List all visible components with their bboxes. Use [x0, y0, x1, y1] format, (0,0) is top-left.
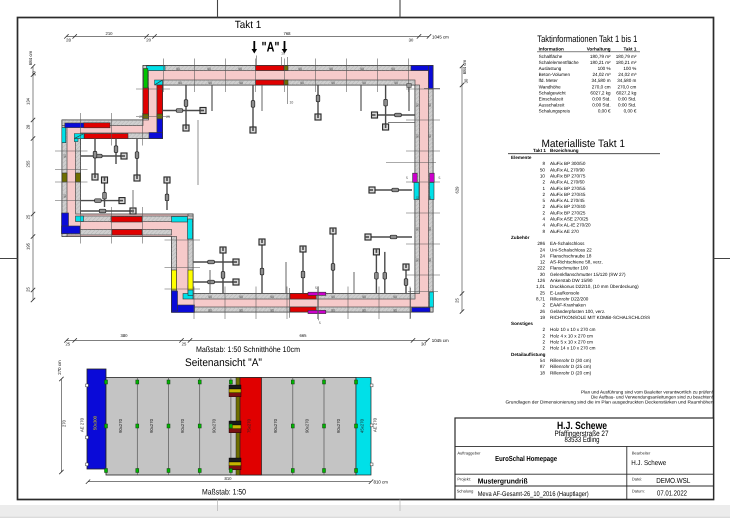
svg-text:210: 210	[106, 31, 114, 36]
svg-text:83533 Edling: 83533 Edling	[565, 435, 600, 444]
svg-text:AluFix AL 270/45: AluFix AL 270/45	[550, 198, 585, 203]
svg-text:684 cm: 684 cm	[462, 59, 467, 74]
svg-text:12: 12	[540, 260, 546, 265]
svg-text:100 %: 100 %	[623, 66, 636, 71]
svg-text:AE 270: AE 270	[373, 417, 378, 432]
svg-text:Wandhöhe: Wandhöhe	[539, 84, 561, 89]
svg-text:26: 26	[540, 309, 546, 314]
svg-text:6027,2 kg: 6027,2 kg	[616, 90, 637, 95]
svg-text:180,21 m²: 180,21 m²	[590, 60, 611, 65]
svg-text:Vorhaltung: Vorhaltung	[587, 46, 611, 51]
svg-text:90: 90	[394, 81, 398, 85]
svg-text:90: 90	[329, 67, 333, 71]
svg-text:Beton-Volumen: Beton-Volumen	[539, 72, 571, 77]
svg-text:0:00 Std.: 0:00 Std.	[592, 97, 610, 102]
svg-text:90: 90	[393, 308, 397, 312]
svg-text:34,580 m: 34,580 m	[617, 78, 636, 83]
svg-text:AluFix AL 270/60: AluFix AL 270/60	[550, 180, 585, 185]
svg-text:6027,2 kg: 6027,2 kg	[590, 90, 611, 95]
svg-text:Holz 14 x 10 x 270 cm: Holz 14 x 10 x 270 cm	[550, 346, 596, 351]
svg-text:Takt 1: Takt 1	[235, 19, 262, 31]
svg-text:180,79 m²: 180,79 m²	[590, 54, 611, 59]
svg-text:24: 24	[540, 247, 546, 252]
svg-text:629: 629	[455, 186, 460, 194]
svg-text:90x270: 90x270	[180, 418, 185, 433]
svg-text:75x270: 75x270	[247, 418, 252, 433]
svg-text:90: 90	[331, 81, 335, 85]
svg-text:25: 25	[455, 298, 460, 303]
svg-text:90: 90	[362, 308, 366, 312]
svg-text:2: 2	[542, 204, 545, 209]
svg-text:2: 2	[542, 210, 545, 215]
svg-text:90: 90	[331, 295, 335, 299]
svg-text:Maßstab: 1:50: Maßstab: 1:50	[202, 487, 246, 496]
svg-text:AluFix BP 300/50: AluFix BP 300/50	[550, 161, 586, 166]
svg-text:Gelenkflanschmutter 15/120 (SW: Gelenkflanschmutter 15/120 (SW 27)	[550, 272, 626, 277]
svg-text:90: 90	[63, 154, 67, 158]
svg-text:5: 5	[319, 321, 321, 325]
svg-text:Ausschalzeit: Ausschalzeit	[539, 103, 566, 108]
svg-text:Holz 10 x 10 x 270 cm: Holz 10 x 10 x 270 cm	[550, 327, 596, 332]
svg-text:Auslastung: Auslastung	[539, 66, 562, 71]
svg-text:90: 90	[238, 67, 242, 71]
svg-text:90: 90	[63, 194, 67, 198]
svg-text:07.01.2022: 07.01.2022	[657, 489, 687, 498]
svg-text:AS-Richtschiene 58, verz.: AS-Richtschiene 58, verz.	[550, 260, 603, 265]
svg-text:5: 5	[315, 286, 317, 290]
svg-text:90: 90	[178, 81, 182, 85]
svg-text:AluFix BP 270/75: AluFix BP 270/75	[550, 173, 586, 178]
svg-text:54: 54	[540, 358, 546, 363]
svg-text:90: 90	[362, 81, 366, 85]
svg-text:25: 25	[26, 287, 31, 292]
svg-text:2: 2	[542, 327, 545, 332]
svg-text:30: 30	[32, 71, 37, 76]
svg-text:Seitenansicht "A": Seitenansicht "A"	[185, 357, 262, 369]
svg-text:Holz 5 x 10 x 270 cm: Holz 5 x 10 x 270 cm	[550, 340, 593, 345]
svg-text:4: 4	[542, 217, 545, 222]
svg-text:30: 30	[421, 342, 426, 347]
svg-text:Einschalzeit: Einschalzeit	[539, 97, 564, 102]
svg-text:2: 2	[542, 180, 545, 185]
svg-text:Projekt:: Projekt:	[457, 477, 471, 482]
svg-text:270,0 cm: 270,0 cm	[592, 84, 611, 89]
svg-text:25: 25	[26, 214, 31, 219]
svg-text:"A": "A"	[262, 39, 280, 55]
svg-text:Geländerpfosten 100, verz.: Geländerpfosten 100, verz.	[550, 309, 605, 314]
svg-text:AluFix AE 270: AluFix AE 270	[550, 229, 579, 234]
svg-text:90x270: 90x270	[336, 418, 341, 433]
svg-text:Information: Information	[539, 46, 564, 51]
svg-text:0,00 €: 0,00 €	[624, 109, 637, 114]
svg-text:90x270: 90x270	[273, 418, 278, 433]
svg-text:90: 90	[208, 81, 212, 85]
svg-text:AluFix ASE 270/25: AluFix ASE 270/25	[550, 217, 589, 222]
svg-text:90: 90	[270, 308, 274, 312]
svg-text:24,02 m³: 24,02 m³	[592, 72, 611, 77]
svg-text:Schalfläche: Schalfläche	[539, 54, 563, 59]
svg-text:Zubehör: Zubehör	[511, 235, 530, 240]
svg-text:DEMO.WSL: DEMO.WSL	[656, 476, 690, 485]
svg-text:EuroSchal Homepage: EuroSchal Homepage	[495, 454, 557, 463]
svg-text:90: 90	[239, 81, 243, 85]
svg-text:90: 90	[298, 67, 302, 71]
svg-text:0,00 €: 0,00 €	[598, 109, 611, 114]
svg-text:AluFix BP 270/55: AluFix BP 270/55	[550, 186, 586, 191]
svg-text:2: 2	[542, 340, 545, 345]
svg-text:Meva AF-Gesamt-26_10_2016 (Hau: Meva AF-Gesamt-26_10_2016 (Hauptlager)	[478, 491, 589, 498]
svg-text:25: 25	[182, 342, 187, 347]
svg-text:24,02 m³: 24,02 m³	[618, 72, 637, 77]
svg-text:Schalelementfläche: Schalelementfläche	[539, 60, 580, 65]
svg-text:50: 50	[540, 167, 546, 172]
svg-text:100 %: 100 %	[598, 66, 611, 71]
svg-text:810: 810	[225, 476, 233, 481]
svg-text:768: 768	[284, 31, 292, 36]
svg-text:Mustergrundriß: Mustergrundriß	[478, 476, 528, 485]
svg-text:10: 10	[290, 101, 294, 105]
svg-text:1,01: 1,01	[536, 284, 545, 289]
svg-text:28: 28	[66, 38, 71, 43]
svg-text:45x270: 45x270	[360, 418, 365, 433]
svg-text:AluFix BP 270/45: AluFix BP 270/45	[550, 192, 586, 197]
svg-text:90: 90	[415, 227, 419, 231]
svg-text:1: 1	[542, 186, 545, 191]
svg-text:1045 cm: 1045 cm	[432, 35, 449, 40]
svg-text:AluFix AL-IE 270/20: AluFix AL-IE 270/20	[550, 223, 591, 228]
svg-text:270 cm: 270 cm	[57, 360, 62, 375]
svg-text:90: 90	[208, 295, 212, 299]
svg-text:Datum:: Datum:	[632, 488, 645, 493]
svg-text:90: 90	[428, 258, 432, 262]
svg-text:180,21 m²: 180,21 m²	[616, 60, 637, 65]
svg-text:Schalung: Schalung	[457, 488, 474, 493]
svg-text:222: 222	[537, 266, 545, 271]
svg-text:90: 90	[428, 103, 432, 107]
svg-text:10: 10	[540, 173, 546, 178]
svg-text:18: 18	[540, 370, 546, 375]
svg-text:RICHTKONSOLE MIT KOMBI-SCHALSC: RICHTKONSOLE MIT KOMBI-SCHALSCHLOSS	[550, 315, 650, 320]
svg-text:EAAF-Kranhaken: EAAF-Kranhaken	[550, 303, 586, 308]
svg-text:90: 90	[331, 308, 335, 312]
svg-text:0:00 Std.: 0:00 Std.	[618, 103, 636, 108]
svg-text:28: 28	[26, 124, 31, 129]
svg-text:87: 87	[540, 364, 546, 369]
svg-text:90x270: 90x270	[211, 418, 216, 433]
svg-text:Elemente: Elemente	[511, 155, 532, 160]
svg-text:665: 665	[300, 333, 308, 338]
svg-text:90x270: 90x270	[118, 418, 123, 433]
svg-text:810 cm: 810 cm	[374, 479, 389, 484]
svg-text:10: 10	[281, 52, 285, 56]
svg-text:90: 90	[270, 295, 274, 299]
svg-text:5: 5	[406, 176, 408, 180]
svg-text:1045 cm: 1045 cm	[432, 338, 449, 343]
svg-text:90: 90	[362, 295, 366, 299]
svg-text:255: 255	[26, 160, 31, 168]
svg-text:90: 90	[415, 103, 419, 107]
svg-text:Schalgewicht: Schalgewicht	[539, 90, 567, 95]
svg-text:380: 380	[121, 333, 129, 338]
svg-text:90: 90	[428, 134, 432, 138]
svg-text:90: 90	[415, 134, 419, 138]
svg-text:270: 270	[62, 419, 67, 427]
svg-text:Druckkonus D22/10, (10 mm Über: Druckkonus D22/10, (10 mm Überdeckung)	[550, 284, 639, 289]
svg-text:Datei:: Datei:	[632, 477, 642, 482]
svg-text:126: 126	[537, 278, 545, 283]
svg-text:EA-Schalschloss: EA-Schalschloss	[550, 241, 585, 246]
svg-text:134: 134	[26, 97, 31, 105]
svg-text:Ankerstab DW 15/90: Ankerstab DW 15/90	[550, 278, 593, 283]
svg-text:5: 5	[439, 176, 441, 180]
svg-text:24: 24	[540, 253, 546, 258]
svg-text:2: 2	[542, 346, 545, 351]
svg-text:90: 90	[428, 196, 432, 200]
svg-text:AluFix BP 270/40: AluFix BP 270/40	[550, 204, 586, 209]
svg-text:Holz 4 x 10 x 270 cm: Holz 4 x 10 x 270 cm	[550, 333, 593, 338]
svg-text:Bezeichnung: Bezeichnung	[550, 148, 579, 153]
svg-text:34,580 m: 34,580 m	[591, 78, 610, 83]
svg-text:Rillenrohr D22/200: Rillenrohr D22/200	[550, 296, 589, 301]
svg-text:8: 8	[542, 161, 545, 166]
svg-text:90: 90	[415, 258, 419, 262]
svg-text:90: 90	[239, 295, 243, 299]
svg-text:lfd. Meter: lfd. Meter	[539, 78, 559, 83]
svg-text:Takt 1: Takt 1	[623, 46, 636, 51]
svg-text:0:00 Std.: 0:00 Std.	[618, 97, 636, 102]
svg-text:AluFix AL 270/90: AluFix AL 270/90	[550, 167, 585, 172]
svg-text:Maßstab: 1:50 Schnitthöhe: Maßstab: 1:50 Schnitthöhe 10cm	[196, 345, 300, 354]
svg-text:8: 8	[542, 229, 545, 234]
svg-text:90: 90	[207, 67, 211, 71]
svg-text:Uni-Schalschloss 22: Uni-Schalschloss 22	[550, 247, 592, 252]
svg-text:2: 2	[542, 333, 545, 338]
svg-text:19: 19	[540, 315, 546, 320]
svg-text:AE 270: AE 270	[80, 417, 85, 432]
svg-text:2: 2	[542, 303, 545, 308]
svg-text:20: 20	[146, 38, 151, 43]
svg-text:25: 25	[139, 115, 143, 119]
svg-text:Schalungspreis: Schalungspreis	[539, 109, 571, 114]
svg-text:Sonstiges: Sonstiges	[511, 321, 533, 326]
svg-text:90: 90	[360, 67, 364, 71]
svg-text:90: 90	[208, 308, 212, 312]
svg-text:0:00 Std.: 0:00 Std.	[592, 103, 610, 108]
svg-text:2: 2	[542, 192, 545, 197]
svg-text:Rillenrohr D (25 cm): Rillenrohr D (25 cm)	[550, 364, 592, 369]
svg-text:90: 90	[415, 196, 419, 200]
svg-text:30: 30	[409, 38, 414, 43]
svg-text:270,0 cm: 270,0 cm	[617, 84, 636, 89]
svg-text:Detailauflistung: Detailauflistung	[511, 352, 546, 357]
svg-text:90: 90	[428, 227, 432, 231]
svg-text:25: 25	[65, 342, 70, 347]
svg-text:Bearbeiter: Bearbeiter	[632, 451, 651, 456]
svg-text:90: 90	[239, 308, 243, 312]
svg-text:90: 90	[176, 67, 180, 71]
svg-text:90x270: 90x270	[304, 418, 309, 433]
svg-text:8,71: 8,71	[536, 296, 545, 301]
svg-text:Rillenrohr D (20 cm): Rillenrohr D (20 cm)	[550, 370, 592, 375]
svg-text:Takt 1: Takt 1	[533, 148, 546, 153]
svg-text:Flanschschraube 18: Flanschschraube 18	[550, 253, 592, 258]
svg-text:90: 90	[391, 67, 395, 71]
svg-text:Taktinformationen Takt 1 bis: Taktinformationen Takt 1 bis 1	[537, 34, 637, 45]
svg-text:25: 25	[166, 115, 170, 119]
svg-text:90: 90	[393, 295, 397, 299]
svg-text:Rillenrohr D (30 cm): Rillenrohr D (30 cm)	[550, 358, 592, 363]
svg-text:180,79 m²: 180,79 m²	[616, 54, 637, 59]
svg-text:Grundlagen der Dimensionierung: Grundlagen der Dimensionierung sind die …	[506, 400, 715, 405]
svg-text:H.J. Schewe: H.J. Schewe	[631, 459, 666, 467]
svg-text:195: 195	[26, 242, 31, 250]
svg-text:Auftraggeber: Auftraggeber	[457, 451, 481, 456]
svg-text:30: 30	[464, 78, 469, 83]
svg-text:684 cm: 684 cm	[28, 50, 33, 65]
svg-text:Flanschmutter 100: Flanschmutter 100	[550, 266, 588, 271]
svg-text:90: 90	[300, 81, 304, 85]
svg-text:AluFix BP 270/25: AluFix BP 270/25	[550, 210, 586, 215]
svg-text:25: 25	[540, 290, 546, 295]
svg-text:E-Laufkonsole: E-Laufkonsole	[550, 290, 580, 295]
svg-text:5: 5	[542, 198, 545, 203]
svg-text:90x270: 90x270	[149, 418, 154, 433]
svg-text:286: 286	[537, 241, 545, 246]
svg-text:50x300: 50x300	[93, 415, 98, 430]
svg-text:30: 30	[540, 272, 546, 277]
svg-text:4: 4	[542, 223, 545, 228]
